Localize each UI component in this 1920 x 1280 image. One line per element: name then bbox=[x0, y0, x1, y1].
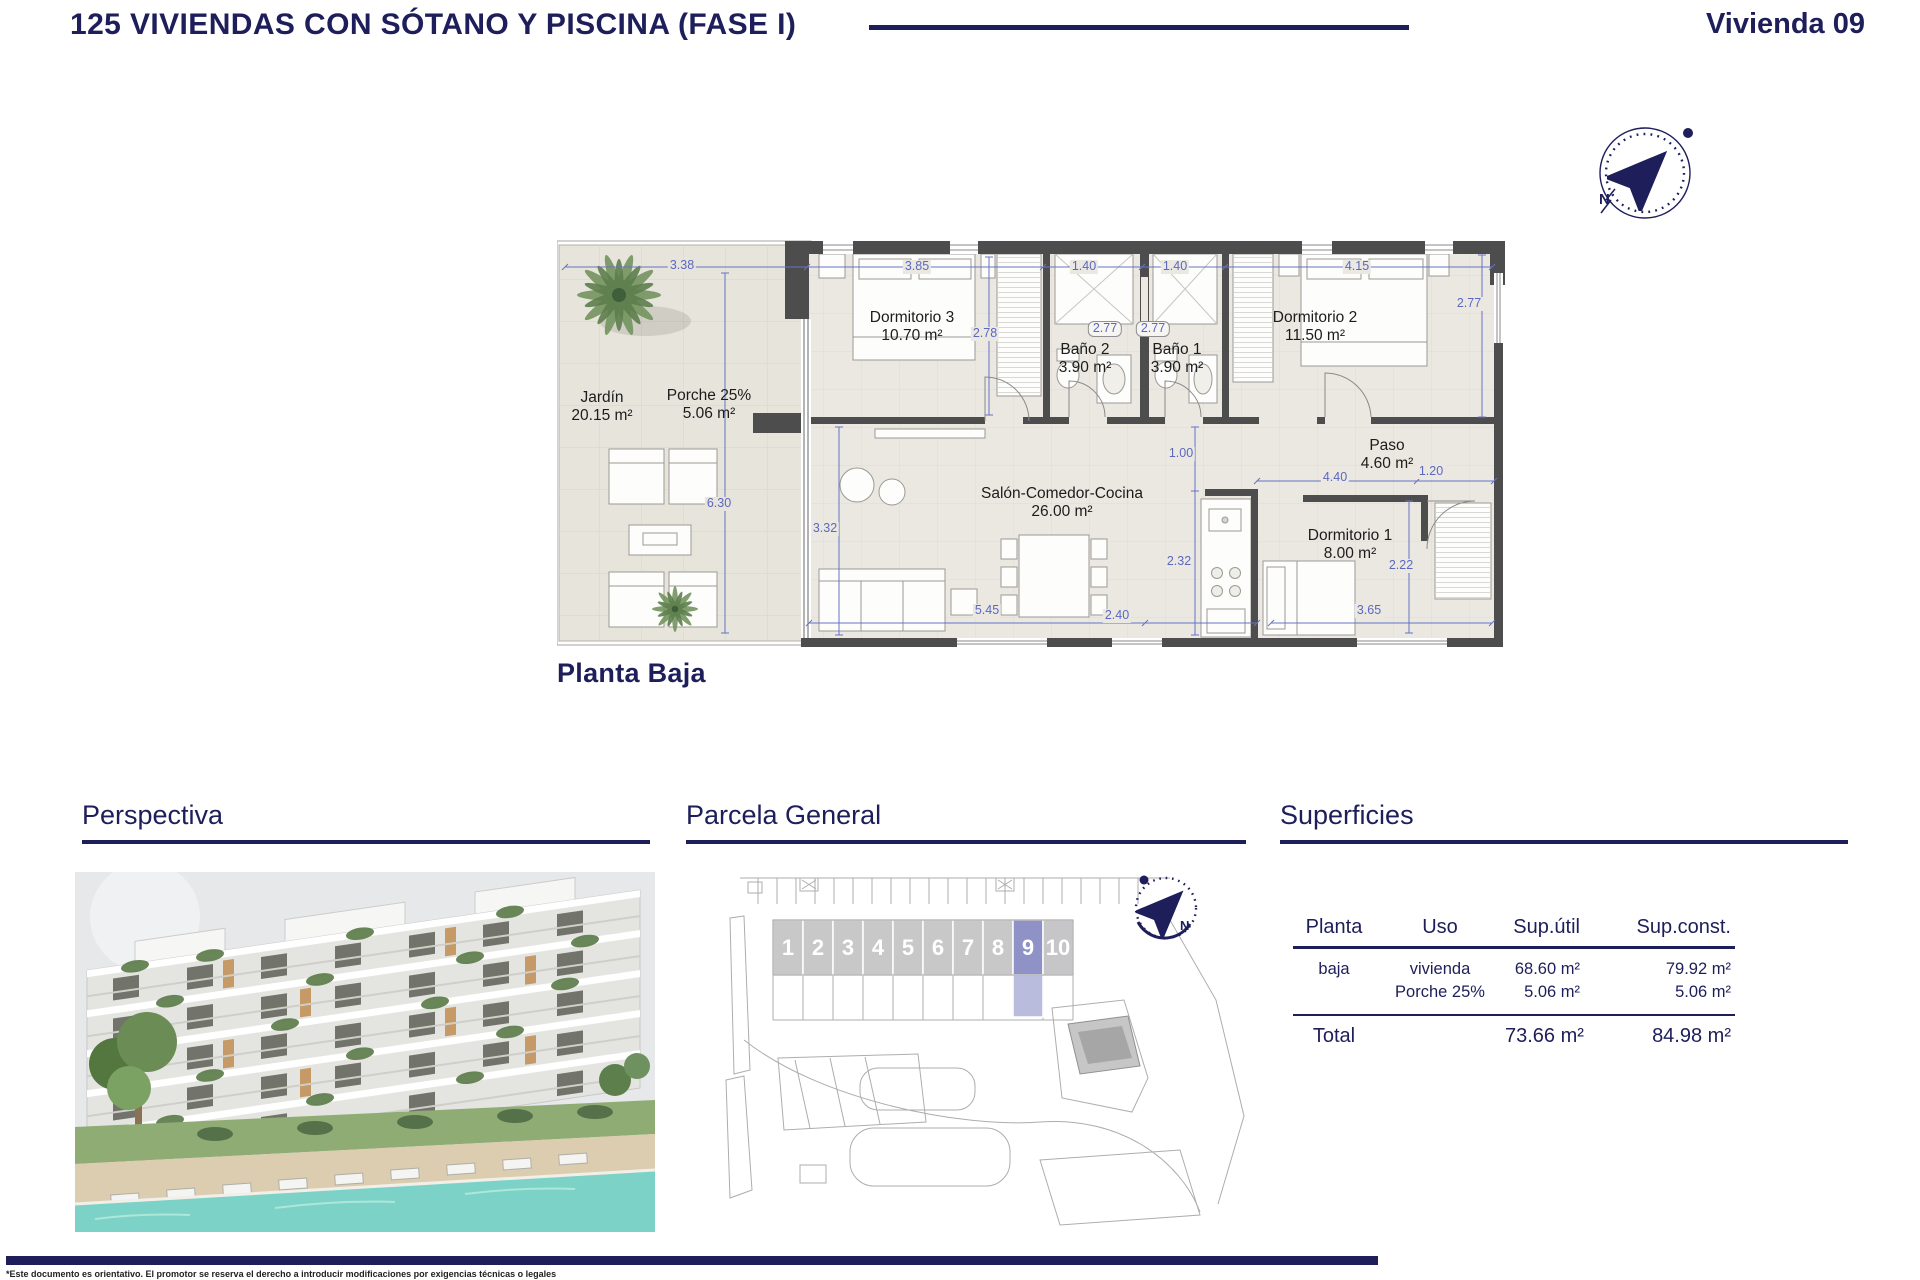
dim-label: 1.40 bbox=[1161, 260, 1189, 274]
dim-label: 2.78 bbox=[971, 327, 999, 341]
dim-label: 6.30 bbox=[705, 497, 733, 511]
parcela-site-plan bbox=[700, 860, 1260, 1230]
col-header-planta: Planta bbox=[1293, 916, 1375, 939]
section-title-perspectiva: Perspectiva bbox=[82, 800, 223, 831]
dim-label: 4.15 bbox=[1343, 260, 1371, 274]
dim-label: 3.38 bbox=[668, 259, 696, 273]
dim-label: 3.65 bbox=[1355, 604, 1383, 618]
section-rule bbox=[686, 840, 1246, 844]
col-header-sup-util: Sup.útil bbox=[1505, 916, 1580, 939]
table-row: Porche 25% 5.06 m² 5.06 m² bbox=[1293, 981, 1735, 1004]
brochure-page: 125 VIVIENDAS CON SÓTANO Y PISCINA (FASE… bbox=[0, 0, 1920, 1280]
col-header-uso: Uso bbox=[1375, 916, 1505, 939]
superficies-table: Planta Uso Sup.útil Sup.const. baja vivi… bbox=[1293, 916, 1735, 1048]
dim-label: 2.77 bbox=[1455, 297, 1483, 311]
unit-number: 5 bbox=[893, 920, 923, 975]
room-label-salon: Salón-Comedor-Cocina26.00 m² bbox=[981, 485, 1143, 522]
footer-disclaimer: *Este documento es orientativo. El promo… bbox=[6, 1269, 556, 1279]
table-rule bbox=[1293, 946, 1735, 949]
dim-label: 2.22 bbox=[1387, 559, 1415, 573]
table-header-row: Planta Uso Sup.útil Sup.const. bbox=[1293, 916, 1735, 946]
section-rule bbox=[82, 840, 650, 844]
section-title-superficies: Superficies bbox=[1280, 800, 1414, 831]
dim-label: 1.40 bbox=[1070, 260, 1098, 274]
palm-tree-small-icon bbox=[652, 586, 698, 632]
unit-number: 8 bbox=[983, 920, 1013, 975]
floor-plan: Jardín20.15 m² Porche 25%5.06 m² Dormito… bbox=[557, 237, 1507, 655]
section-rule bbox=[1280, 840, 1848, 844]
plan-caption: Planta Baja bbox=[557, 658, 706, 689]
unit-number: 2 bbox=[803, 920, 833, 975]
parcela-compass-north-label: N bbox=[1180, 918, 1189, 933]
room-label-dormitorio-3: Dormitorio 310.70 m² bbox=[870, 309, 954, 346]
page-title: 125 VIVIENDAS CON SÓTANO Y PISCINA (FASE… bbox=[70, 8, 796, 42]
room-label-porche: Porche 25%5.06 m² bbox=[667, 387, 751, 424]
unit-number-highlighted: 9 bbox=[1013, 920, 1043, 975]
unit-number: 10 bbox=[1043, 920, 1073, 975]
unit-number: 6 bbox=[923, 920, 953, 975]
unit-number-row: 1 2 3 4 5 6 7 8 9 10 bbox=[773, 920, 1073, 975]
room-label-jardin: Jardín20.15 m² bbox=[571, 389, 632, 426]
dim-label: 2.32 bbox=[1165, 555, 1193, 569]
compass-north-label: N bbox=[1599, 191, 1610, 208]
section-title-parcela: Parcela General bbox=[686, 800, 881, 831]
title-rule bbox=[869, 25, 1409, 30]
col-header-sup-const: Sup.const. bbox=[1580, 916, 1731, 939]
dim-label: 2.77 bbox=[1136, 321, 1170, 337]
unit-number: 3 bbox=[833, 920, 863, 975]
room-label-dormitorio-1: Dormitorio 18.00 m² bbox=[1308, 527, 1392, 564]
dim-label: 3.32 bbox=[811, 522, 839, 536]
room-label-bano-1: Baño 13.90 m² bbox=[1151, 341, 1204, 378]
unit-label: Vivienda 09 bbox=[1706, 8, 1865, 41]
dim-label: 3.85 bbox=[903, 260, 931, 274]
dim-label: 4.40 bbox=[1321, 471, 1349, 485]
unit-number: 7 bbox=[953, 920, 983, 975]
table-rule bbox=[1293, 1014, 1735, 1017]
perspectiva-image bbox=[75, 872, 655, 1232]
compass-icon bbox=[1585, 113, 1705, 233]
dim-label: 2.40 bbox=[1103, 609, 1131, 623]
unit-number: 1 bbox=[773, 920, 803, 975]
dim-label: 1.20 bbox=[1417, 465, 1445, 479]
footer-bar bbox=[6, 1256, 1378, 1265]
room-label-dormitorio-2: Dormitorio 211.50 m² bbox=[1273, 309, 1357, 346]
table-row: baja vivienda 68.60 m² 79.92 m² bbox=[1293, 958, 1735, 981]
dim-label: 1.00 bbox=[1167, 447, 1195, 461]
unit-number: 4 bbox=[863, 920, 893, 975]
dim-label: 2.77 bbox=[1088, 321, 1122, 337]
glass-facade bbox=[801, 319, 811, 638]
dim-label: 5.45 bbox=[973, 604, 1001, 618]
room-label-bano-2: Baño 23.90 m² bbox=[1059, 341, 1112, 378]
room-label-paso: Paso4.60 m² bbox=[1361, 437, 1414, 474]
table-total-row: Total 73.66 m² 84.98 m² bbox=[1293, 1025, 1735, 1048]
